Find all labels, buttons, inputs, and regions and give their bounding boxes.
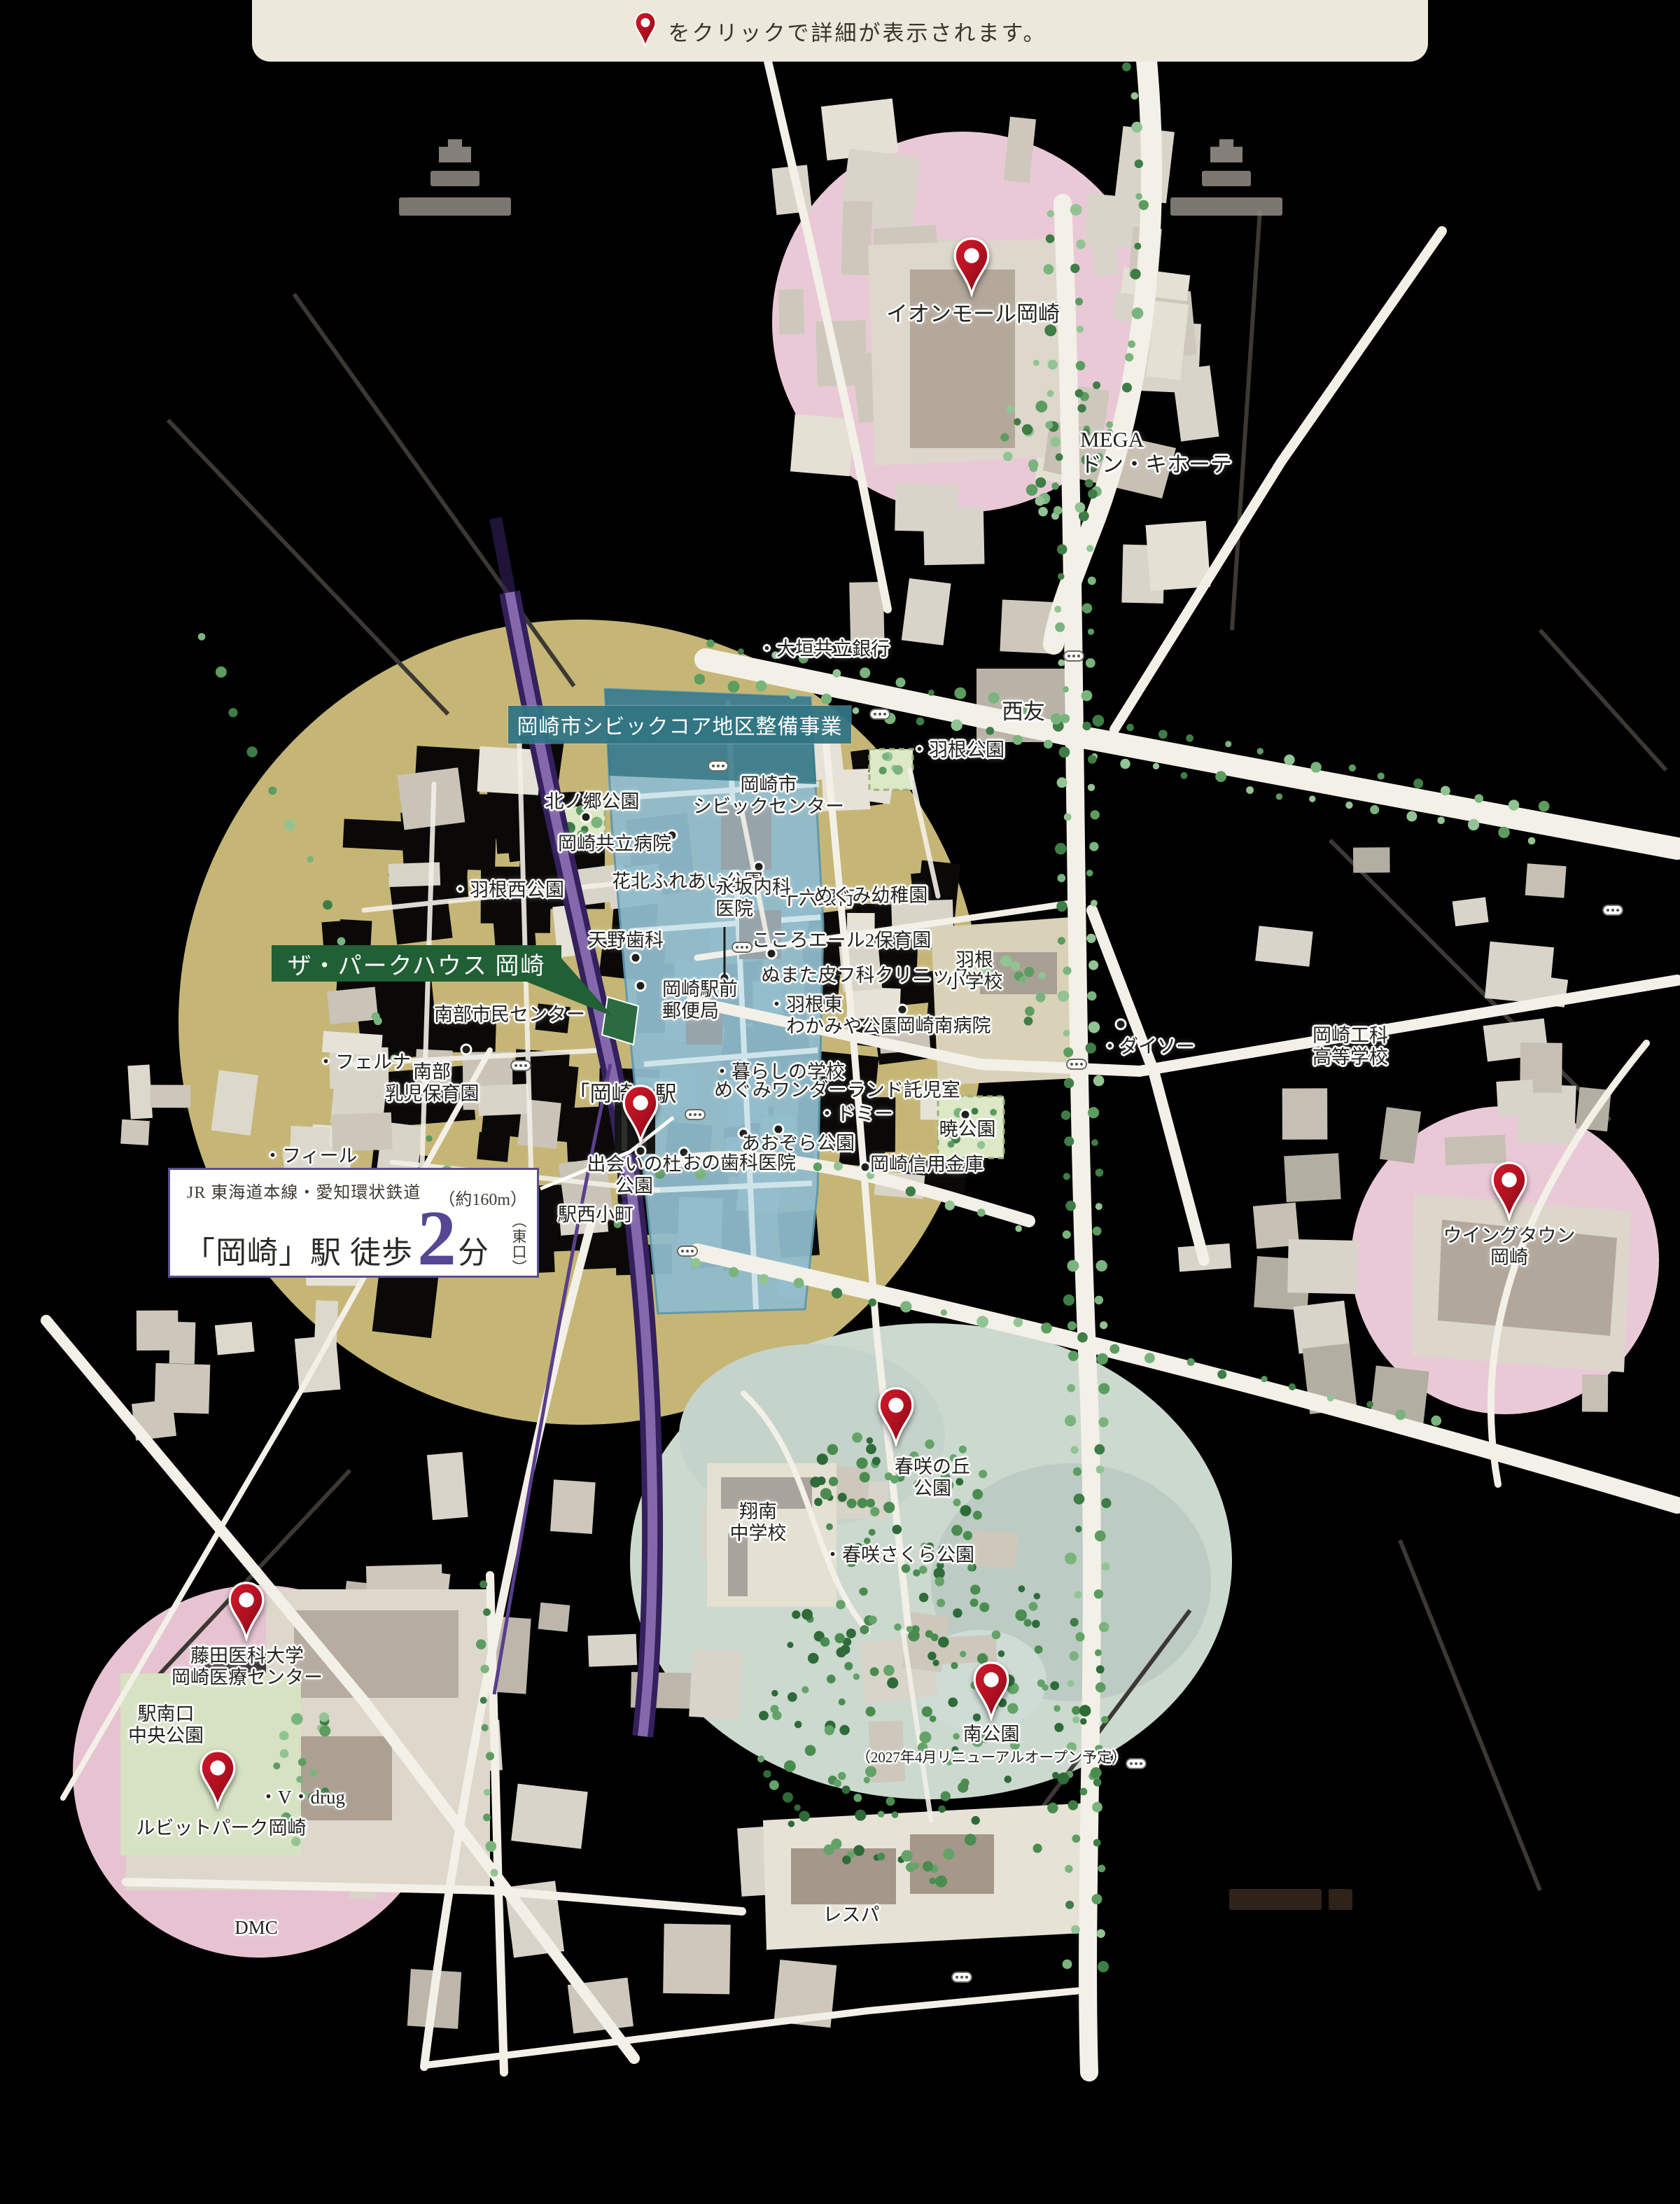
faded-direction-marker-north-east (1170, 137, 1282, 216)
map-label: ・ドミー (818, 1103, 893, 1125)
pin-icon (972, 1661, 1011, 1721)
faded-text-bar (1229, 1889, 1322, 1910)
pin-icon (198, 1749, 237, 1809)
map-label: めぐみ幼稚園 (814, 885, 928, 907)
pin-icon (876, 1386, 916, 1446)
walk-time: 「岡崎」駅 徒歩 2 分 (184, 1209, 489, 1269)
project-name-label: ザ・パークハウス 岡崎 (272, 945, 561, 982)
building-icon (1210, 137, 1242, 162)
map-label: 翔南中学校 (730, 1501, 787, 1545)
map-label: 羽根小学校 (946, 949, 1003, 993)
map-label: ルビットパーク岡崎 (136, 1818, 307, 1839)
pin-icon (952, 237, 991, 297)
pin-icon (621, 1084, 660, 1144)
map-label: イオンモール岡崎 (886, 302, 1060, 327)
map-pin-deai-no-mori-park[interactable] (621, 1084, 660, 1144)
walk-minutes-unit: 分 (458, 1238, 489, 1269)
map-label: 北ノ郷公園 (545, 791, 640, 813)
rail-line-label: JR 東海道本線・愛知環状鉄道 (187, 1178, 421, 1203)
faded-text-bar (1202, 171, 1251, 186)
walk-distance-note: （約160m） (438, 1185, 527, 1210)
faded-text-bar (1170, 197, 1282, 216)
map-label: 南部市民センター (434, 1004, 585, 1026)
map-label: ぬまた皮フ科クリニック (762, 965, 969, 986)
faded-direction-marker-north-west (399, 137, 511, 216)
map-label: ・春咲さくら公園 (823, 1544, 974, 1566)
map-label: ・羽根公園 (910, 739, 1004, 761)
map-label: ・V・drug (259, 1787, 345, 1808)
station-walk-callout: JR 東海道本線・愛知環状鉄道 「岡崎」駅 徒歩 2 分 （約160m） （東口… (168, 1168, 539, 1278)
map-pin-harusaki-no-oka-park[interactable] (876, 1386, 916, 1446)
station-exit-note: （東口） (511, 1213, 526, 1275)
legend-text: をクリックで詳細が表示されます。 (668, 15, 1047, 47)
map-label: 暁公園 (939, 1119, 996, 1141)
faded-text-bar (399, 197, 511, 216)
map-label: おの歯科医院 (682, 1152, 796, 1174)
building-icon (439, 137, 471, 162)
map-label: レスパ (823, 1904, 880, 1926)
map-label: 岡崎信用金庫 (870, 1154, 983, 1176)
faded-direction-note-south-east (1229, 1889, 1352, 1910)
map-label: 西友 (1002, 699, 1045, 725)
faded-text-bar (430, 171, 479, 186)
map-label: 天野歯科 (588, 930, 664, 951)
map-label: ・フィール (263, 1145, 357, 1167)
map-label: 南公園 (963, 1724, 1020, 1745)
map-label: ・羽根西公園 (451, 879, 564, 901)
map-pin-minami-park[interactable] (972, 1661, 1011, 1721)
map-label: （2027年4月リニューアルオープン予定） (856, 1749, 1126, 1766)
map-label: ・ダイソー (1100, 1036, 1195, 1058)
map-label: こころエール2保育園 (752, 930, 932, 951)
pin-icon (633, 11, 657, 51)
map-label: 南部乳児保育園 (385, 1061, 479, 1106)
faded-text-bar (1329, 1889, 1352, 1910)
map-canvas: をクリックで詳細が表示されます。 岡崎市シビックコア地区整備事業 ザ・パークハウ… (0, 0, 1680, 2204)
civic-core-banner: 岡崎市シビックコア地区整備事業 (508, 706, 851, 744)
map-label: あおぞら公園 (741, 1133, 855, 1155)
legend-banner: をクリックで詳細が表示されます。 (252, 0, 1428, 62)
pin-icon (633, 11, 657, 48)
map-label: 藤田医科大学岡崎医療センター (171, 1645, 323, 1689)
map-label: 岡崎共立病院 (558, 833, 671, 855)
walk-minutes-value: 2 (417, 1209, 456, 1269)
map-label: 駅西小町 (558, 1204, 633, 1226)
map-pin-lubit-park-okazaki[interactable] (198, 1749, 237, 1809)
map-label: ウイングタウン岡崎 (1443, 1225, 1576, 1269)
map-label: MEGAドン・キホーテ (1080, 427, 1232, 477)
map-label: 岡崎市シビックセンター (693, 774, 844, 818)
map-label: 永坂内科医院 (715, 877, 791, 921)
station-walk-label: 「岡崎」駅 徒歩 (184, 1238, 413, 1269)
map-label: 岡崎工科高等学校 (1312, 1025, 1388, 1069)
pin-icon (227, 1581, 266, 1641)
map-label: ・羽根東 わかみや公園 (767, 994, 899, 1038)
map-label: DMC (234, 1917, 278, 1939)
map-label: 駅南口中央公園 (128, 1703, 204, 1748)
map-pin-aeon-mall-okazaki[interactable] (952, 237, 991, 297)
map-label: ・大垣共立銀行 (757, 639, 890, 660)
map-label: 春咲の丘公園 (895, 1456, 970, 1500)
map-label: 岡崎南病院 (897, 1015, 991, 1037)
map-label: めぐみワンダーランド託児室 (714, 1080, 960, 1101)
pin-icon (1490, 1161, 1529, 1221)
map-label: 岡崎駅前郵便局 (662, 979, 738, 1023)
base-map-graphic (0, 0, 1680, 2204)
map-pin-wingtown-okazaki[interactable] (1490, 1161, 1529, 1221)
map-pin-fujita-medical-center[interactable] (227, 1581, 266, 1641)
map-label: 出会いの杜公園 (587, 1154, 682, 1198)
